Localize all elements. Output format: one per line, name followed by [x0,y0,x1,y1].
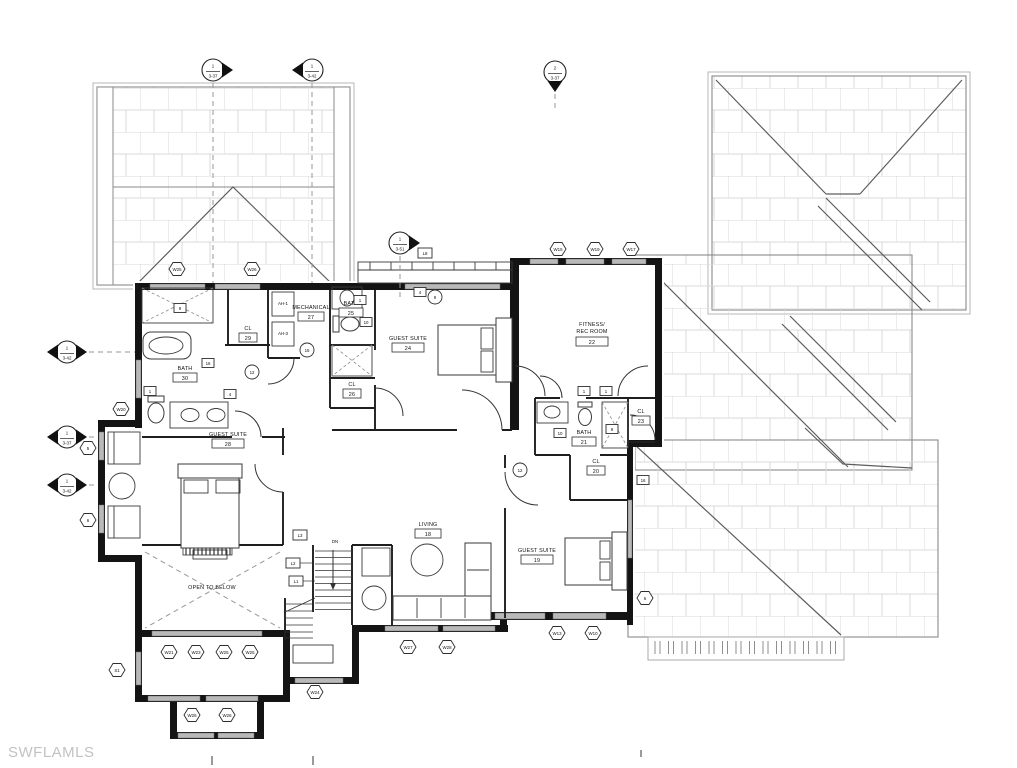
svg-text:S1: S1 [114,668,120,673]
svg-text:CL: CL [348,382,355,388]
toilet [148,396,164,402]
svg-text:3-37: 3-37 [63,441,72,446]
svg-text:W13: W13 [552,631,562,636]
open-to-below-label: OPEN TO BELOW [188,585,236,591]
svg-text:GUEST SUITE: GUEST SUITE [209,432,247,438]
floor-plan-drawing: DN L3 L2 L1 L8 AH-1 AH [0,0,1017,768]
balcony-tag: L8 [418,248,432,258]
toilet [333,316,339,332]
room-label-guest-suite-24: GUEST SUITE 24 [389,336,427,352]
stair-tag: L3 [293,530,307,540]
svg-text:W25: W25 [172,267,182,272]
svg-text:GUEST SUITE: GUEST SUITE [389,336,427,342]
svg-text:W25: W25 [219,650,229,655]
bed [438,325,496,375]
svg-text:27: 27 [308,315,314,321]
svg-text:GUEST SUITE: GUEST SUITE [518,548,556,554]
svg-text:3-37: 3-37 [209,74,218,79]
svg-text:16: 16 [641,478,646,483]
svg-text:22: 22 [589,340,595,346]
svg-text:W17: W17 [626,247,636,252]
svg-text:LIVING: LIVING [419,522,438,528]
guest-suite-19-furniture [565,532,627,590]
bathtub [143,332,191,359]
svg-text:FITNESS/: FITNESS/ [579,322,605,328]
svg-text:23: 23 [638,419,644,425]
section-marker: 1 3-42 [47,341,87,363]
guest-suite-24-furniture [438,318,512,382]
svg-text:W23: W23 [191,650,201,655]
scale-ticks [211,750,642,765]
svg-text:3-42: 3-42 [308,74,317,79]
roof-right [628,72,970,660]
svg-text:CL: CL [244,326,251,332]
svg-text:W10: W10 [588,631,598,636]
svg-text:21: 21 [581,440,587,446]
svg-text:19: 19 [534,558,540,564]
svg-text:W26: W26 [247,267,257,272]
svg-text:10: 10 [558,431,563,436]
svg-text:CL: CL [637,409,644,415]
roof-eave-brackets [648,637,844,660]
svg-text:26: 26 [349,392,355,398]
ah1-label: AH-1 [278,301,289,306]
svg-text:24: 24 [405,346,411,352]
svg-text:W15: W15 [553,247,563,252]
svg-text:12: 12 [250,370,255,375]
room-label-fitness-rec-22: FITNESS/ REC ROOM 22 [576,322,608,346]
svg-text:W24: W24 [310,690,320,695]
svg-text:W28: W28 [442,645,452,650]
svg-text:30: 30 [182,376,188,382]
svg-text:REC ROOM: REC ROOM [576,329,608,335]
svg-text:W25: W25 [245,650,255,655]
svg-text:10: 10 [364,320,369,325]
room-label-living-18: LIVING 18 [415,522,441,538]
section-marker: 1 3-42 [292,59,323,81]
bed [181,478,239,548]
svg-text:W19: W19 [590,247,600,252]
svg-text:3-42: 3-42 [63,489,72,494]
svg-text:W21: W21 [164,650,174,655]
ah3-label: AH-3 [278,331,289,336]
svg-text:L8: L8 [423,251,428,256]
room-label-mechanical-27: MECHANICAL 27 [292,305,329,321]
room-label-guest-suite-19: GUEST SUITE 19 [518,548,556,564]
svg-text:3-37: 3-37 [551,76,560,81]
svg-text:BATH: BATH [577,430,592,436]
section-marker: 1 3-37 [202,59,233,81]
svg-text:12: 12 [518,468,523,473]
svg-text:W26: W26 [187,713,197,718]
svg-text:CL: CL [592,459,599,465]
svg-text:W26: W26 [222,713,232,718]
watermark: SWFLAMLS [8,744,95,761]
section-marker: 1 3-42 [47,474,87,496]
svg-text:L3: L3 [298,533,303,538]
svg-text:18: 18 [425,532,431,538]
svg-text:W20: W20 [116,407,126,412]
section-marker: 1 3-37 [47,426,87,448]
svg-text:16: 16 [206,361,211,366]
svg-text:3-42: 3-42 [63,356,72,361]
svg-text:3-51: 3-51 [396,247,405,252]
svg-text:BATH: BATH [178,366,193,372]
svg-text:L2: L2 [291,561,296,566]
svg-text:L1: L1 [294,579,299,584]
toilet [578,402,592,407]
stair-direction-label: DN [332,539,338,544]
svg-text:MECHANICAL: MECHANICAL [292,305,329,311]
floor-plan-page: DN L3 L2 L1 L8 AH-1 AH [0,0,1017,768]
svg-text:25: 25 [348,311,354,317]
section-marker: 2 3-37 [544,61,566,92]
svg-text:29: 29 [245,336,251,342]
room-label-guest-suite-28: GUEST SUITE 28 [209,432,247,448]
roof-top-left [93,83,354,289]
bed [565,538,612,585]
svg-text:20: 20 [593,469,599,475]
svg-text:15: 15 [305,348,310,353]
svg-text:28: 28 [225,442,231,448]
section-marker: 1 3-51 [389,232,420,254]
svg-text:W27: W27 [403,645,413,650]
